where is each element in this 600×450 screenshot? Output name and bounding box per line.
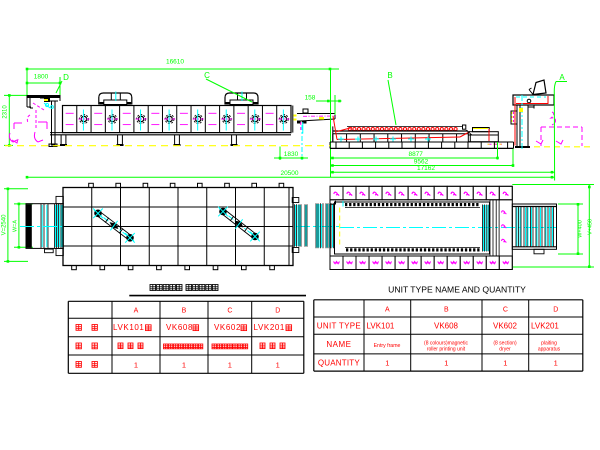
svg-text:UNIT TYPE NAME AND QUANTITY: UNIT TYPE NAME AND QUANTITY [388, 285, 526, 295]
svg-text:LVK101: LVK101 [367, 322, 395, 331]
svg-text:LVK201: LVK201 [254, 323, 285, 332]
svg-text:QUANTITY: QUANTITY [318, 359, 361, 368]
svg-text:1830: 1830 [284, 151, 299, 158]
svg-text:A: A [385, 307, 390, 314]
svg-text:V+450: V+450 [588, 219, 594, 235]
svg-text:VK602: VK602 [493, 322, 518, 331]
svg-text:VK608: VK608 [166, 323, 193, 332]
svg-text:NAME: NAME [326, 340, 351, 349]
svg-text:D: D [553, 307, 558, 314]
svg-text:C: C [204, 71, 210, 80]
svg-text:V=2540: V=2540 [2, 214, 8, 236]
svg-text:A: A [134, 308, 139, 315]
svg-text:1: 1 [503, 359, 507, 368]
svg-text:1: 1 [554, 359, 558, 368]
svg-text:1: 1 [385, 359, 389, 368]
svg-text:D: D [63, 73, 69, 82]
svg-text:8877: 8877 [408, 151, 423, 158]
svg-text:UNIT TYPE: UNIT TYPE [317, 322, 361, 331]
svg-text:LVK101: LVK101 [113, 323, 144, 332]
svg-text:LVK201: LVK201 [531, 322, 559, 331]
svg-text:1: 1 [228, 360, 232, 369]
svg-text:A: A [559, 73, 565, 82]
svg-text:C: C [227, 308, 232, 315]
svg-text:2310: 2310 [3, 105, 9, 119]
svg-text:roller printing unit: roller printing unit [427, 347, 466, 353]
svg-text:dryer: dryer [499, 347, 511, 353]
svg-text:VK602: VK602 [214, 323, 241, 332]
svg-text:20500: 20500 [280, 170, 298, 177]
svg-text:1: 1 [276, 360, 280, 369]
svg-text:apparatus: apparatus [538, 347, 561, 353]
svg-text:1800: 1800 [34, 74, 49, 81]
svg-text:17162: 17162 [417, 165, 435, 172]
svg-text:W=A: W=A [13, 220, 19, 232]
svg-text:16610: 16610 [166, 59, 184, 66]
svg-text:W+400: W+400 [578, 220, 584, 238]
svg-text:1: 1 [444, 359, 448, 368]
svg-text:158: 158 [305, 95, 316, 102]
svg-text:D: D [275, 308, 280, 315]
svg-text:C: C [503, 307, 508, 314]
svg-text:1: 1 [134, 360, 138, 369]
svg-text:1: 1 [182, 360, 186, 369]
svg-text:B: B [182, 308, 187, 315]
svg-text:Entry frame: Entry frame [374, 343, 401, 349]
svg-text:VK608: VK608 [434, 322, 459, 331]
svg-text:B: B [387, 71, 392, 80]
svg-text:B: B [444, 307, 449, 314]
